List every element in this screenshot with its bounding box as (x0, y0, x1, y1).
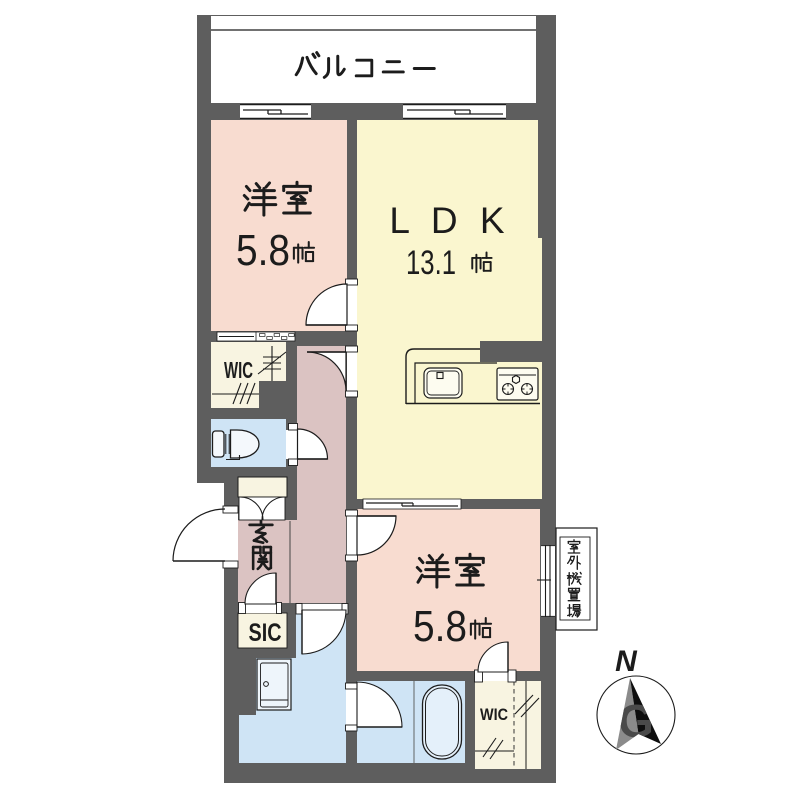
svg-text:N: N (615, 645, 638, 678)
svg-text:G: G (618, 695, 654, 747)
svg-text:5.8: 5.8 (236, 226, 290, 275)
svg-text:WIC: WIC (224, 357, 253, 383)
svg-text:SIC: SIC (249, 619, 282, 647)
svg-text:WIC: WIC (480, 705, 508, 724)
svg-text:5.8: 5.8 (413, 602, 467, 651)
svg-text:13.1: 13.1 (406, 244, 456, 282)
svg-text:L D K: L D K (389, 200, 510, 241)
